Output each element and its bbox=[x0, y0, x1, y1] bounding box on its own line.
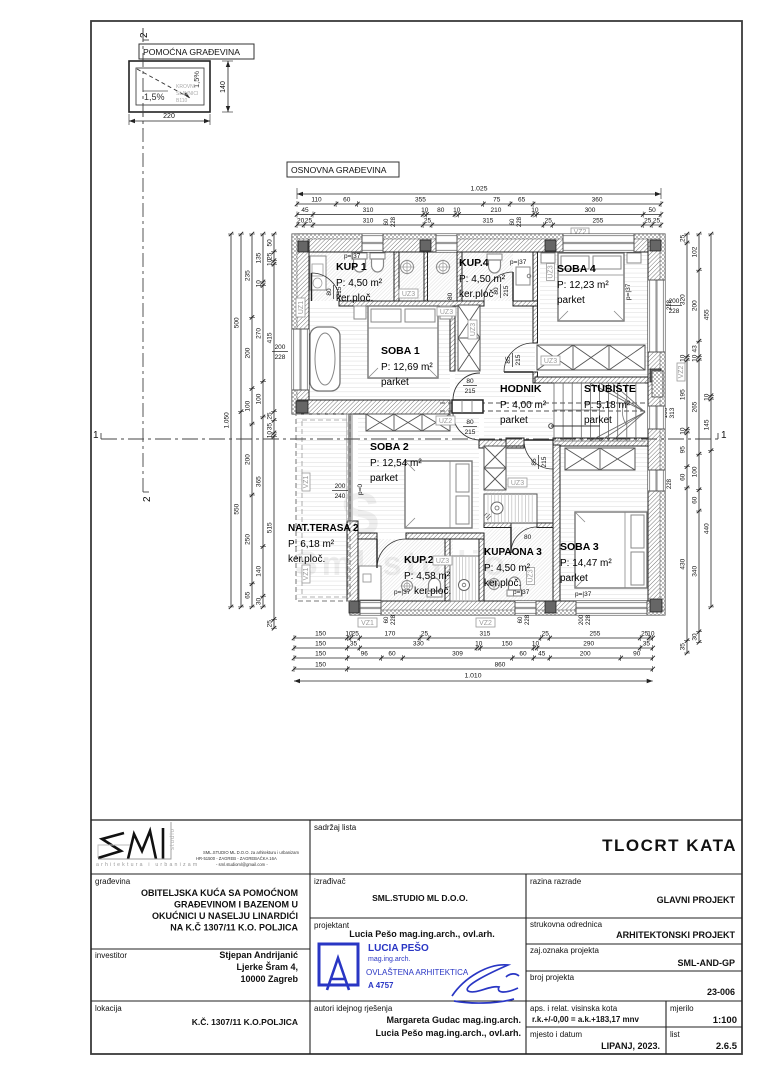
svg-text:UZ3: UZ3 bbox=[436, 558, 449, 565]
svg-text:270: 270 bbox=[256, 328, 263, 339]
svg-text:85: 85 bbox=[505, 356, 512, 364]
svg-text:228: 228 bbox=[669, 308, 680, 315]
svg-text:zaj.oznaka projekta: zaj.oznaka projekta bbox=[530, 946, 599, 955]
svg-text:UZ3: UZ3 bbox=[544, 358, 557, 365]
svg-text:p=|37: p=|37 bbox=[394, 589, 411, 596]
svg-text:investitor: investitor bbox=[95, 951, 127, 960]
svg-text:razina razrade: razina razrade bbox=[530, 877, 582, 886]
svg-text:228: 228 bbox=[586, 614, 592, 625]
svg-text:P: 4,50 m²: P: 4,50 m² bbox=[484, 563, 531, 574]
svg-text:HODNIK: HODNIK bbox=[500, 383, 542, 395]
svg-text:POMOĆNA GRAĐEVINA: POMOĆNA GRAĐEVINA bbox=[143, 47, 240, 57]
svg-text:GLAVNI PROJEKT: GLAVNI PROJEKT bbox=[657, 895, 736, 905]
svg-text:r.k.+/-0,00 = a.k.+183,17 mnv: r.k.+/-0,00 = a.k.+183,17 mnv bbox=[532, 1015, 640, 1024]
svg-text:list: list bbox=[670, 1030, 681, 1039]
svg-text:150: 150 bbox=[315, 662, 326, 669]
svg-text:65: 65 bbox=[245, 591, 252, 599]
svg-text:autori idejnog rješenja: autori idejnog rješenja bbox=[314, 1004, 393, 1013]
svg-text:320: 320 bbox=[680, 294, 687, 305]
svg-text:200: 200 bbox=[275, 344, 286, 351]
svg-text:SOBA 2: SOBA 2 bbox=[370, 441, 409, 453]
svg-text:315: 315 bbox=[482, 218, 493, 225]
svg-text:215: 215 bbox=[503, 285, 510, 296]
svg-text:150: 150 bbox=[315, 651, 326, 658]
svg-text:200: 200 bbox=[335, 483, 346, 490]
svg-text:35: 35 bbox=[267, 423, 274, 431]
svg-text:GRAĐEVINOM I BAZENOM U: GRAĐEVINOM I BAZENOM U bbox=[174, 900, 298, 910]
svg-text:P: 14,47 m²: P: 14,47 m² bbox=[560, 558, 612, 569]
svg-text:200: 200 bbox=[580, 651, 591, 658]
svg-text:K.Č. 1307/11 K.O.POLJICA: K.Č. 1307/11 K.O.POLJICA bbox=[192, 1016, 298, 1027]
svg-text:SML-AND-GP: SML-AND-GP bbox=[678, 958, 736, 968]
svg-text:UZ1: UZ1 bbox=[298, 301, 305, 314]
svg-text:60: 60 bbox=[692, 496, 699, 504]
svg-text:1.050: 1.050 bbox=[224, 412, 231, 429]
svg-text:TLOCRT KATA: TLOCRT KATA bbox=[602, 836, 737, 855]
svg-text:102: 102 bbox=[692, 246, 699, 257]
svg-text:1: 1 bbox=[93, 430, 99, 441]
svg-text:240: 240 bbox=[335, 493, 346, 500]
svg-text:P: 12,23 m²: P: 12,23 m² bbox=[557, 280, 609, 291]
svg-text:KUPAONA 3: KUPAONA 3 bbox=[484, 547, 542, 558]
svg-text:p=|37: p=|37 bbox=[575, 591, 592, 598]
svg-text:ker.ploč.: ker.ploč. bbox=[288, 554, 325, 565]
svg-text:35: 35 bbox=[643, 641, 651, 648]
svg-text:80: 80 bbox=[466, 378, 474, 385]
svg-text:310: 310 bbox=[363, 218, 374, 225]
svg-text:p=|37: p=|37 bbox=[513, 589, 530, 596]
svg-text:građevina: građevina bbox=[95, 877, 131, 886]
svg-text:KUP.2: KUP.2 bbox=[404, 554, 434, 566]
svg-text:65: 65 bbox=[518, 197, 526, 204]
svg-text:SOBA 1: SOBA 1 bbox=[381, 345, 420, 357]
svg-text:80: 80 bbox=[524, 534, 532, 541]
svg-text:KUP.4: KUP.4 bbox=[459, 257, 489, 269]
svg-text:60: 60 bbox=[510, 218, 516, 225]
svg-text:LUCIA PEŠO: LUCIA PEŠO bbox=[368, 941, 429, 954]
svg-text:parket: parket bbox=[557, 295, 585, 306]
svg-text:313: 313 bbox=[669, 407, 676, 418]
svg-text:P: 4,50 m²: P: 4,50 m² bbox=[459, 274, 506, 285]
svg-text:LIPANJ, 2023.: LIPANJ, 2023. bbox=[601, 1041, 660, 1051]
svg-text:Margareta Gudac mag.ing.arch.: Margareta Gudac mag.ing.arch. bbox=[386, 1015, 521, 1025]
svg-text:140: 140 bbox=[256, 565, 263, 576]
svg-text:izrađivač: izrađivač bbox=[314, 877, 346, 886]
svg-text:parket: parket bbox=[584, 415, 612, 426]
svg-text:200: 200 bbox=[245, 454, 252, 465]
svg-text:200: 200 bbox=[692, 300, 699, 311]
svg-text:UZ3: UZ3 bbox=[402, 291, 415, 298]
svg-text:135: 135 bbox=[256, 252, 263, 263]
svg-text:228: 228 bbox=[517, 216, 523, 227]
svg-text:P: 4,00 m²: P: 4,00 m² bbox=[500, 400, 547, 411]
svg-text:215: 215 bbox=[465, 388, 476, 395]
svg-text:200: 200 bbox=[579, 614, 585, 625]
svg-text:60: 60 bbox=[384, 616, 390, 623]
svg-text:OSNOVNA GRAĐEVINA: OSNOVNA GRAĐEVINA bbox=[291, 165, 387, 175]
svg-text:sadržaj lista: sadržaj lista bbox=[314, 823, 357, 832]
svg-text:ker.ploč.: ker.ploč. bbox=[484, 578, 521, 589]
svg-text:p=|37: p=|37 bbox=[344, 253, 361, 260]
svg-text:100: 100 bbox=[256, 393, 263, 404]
svg-text:455: 455 bbox=[704, 309, 711, 320]
svg-text:310: 310 bbox=[363, 207, 374, 214]
svg-text:10000 Zagreb: 10000 Zagreb bbox=[240, 974, 298, 984]
svg-text:strukovna odrednica: strukovna odrednica bbox=[530, 920, 603, 929]
svg-text:VZ2: VZ2 bbox=[479, 620, 492, 627]
svg-text:100: 100 bbox=[692, 466, 699, 477]
svg-text:p=0: p=0 bbox=[357, 484, 364, 495]
svg-text:SML.STUDIO ML D.O.O. za arhi: SML.STUDIO ML D.O.O. za arhitekturu i ur… bbox=[203, 850, 299, 855]
svg-text:ker.ploč.: ker.ploč. bbox=[414, 586, 451, 597]
svg-text:43: 43 bbox=[692, 345, 699, 353]
svg-text:150: 150 bbox=[315, 631, 326, 638]
svg-text:860: 860 bbox=[495, 662, 506, 669]
svg-text:P: 12,69 m²: P: 12,69 m² bbox=[381, 362, 433, 373]
svg-text:VZ1: VZ1 bbox=[303, 475, 310, 488]
svg-text:NAT.TERASA 2: NAT.TERASA 2 bbox=[288, 523, 359, 534]
svg-text:45: 45 bbox=[538, 651, 546, 658]
svg-text:430: 430 bbox=[680, 558, 687, 569]
svg-text:VZ1: VZ1 bbox=[361, 620, 374, 627]
svg-text:HR-51500 - ZAGREB - ZAGREBAČKA: HR-51500 - ZAGREB - ZAGREBAČKA 16A bbox=[196, 856, 277, 861]
svg-text:228: 228 bbox=[667, 478, 673, 489]
svg-text:UZ3: UZ3 bbox=[511, 480, 524, 487]
svg-text:60: 60 bbox=[388, 651, 396, 658]
svg-text:250: 250 bbox=[245, 534, 252, 545]
svg-text:150: 150 bbox=[315, 641, 326, 648]
svg-text:1,5%: 1,5% bbox=[144, 92, 165, 102]
svg-text:23-006: 23-006 bbox=[707, 987, 735, 997]
svg-text:VZ1: VZ1 bbox=[303, 567, 310, 580]
svg-text:aps. i relat. visinska kota: aps. i relat. visinska kota bbox=[530, 1004, 618, 1013]
svg-text:80: 80 bbox=[466, 419, 474, 426]
svg-text:95: 95 bbox=[680, 446, 687, 454]
svg-text:SOBA 4: SOBA 4 bbox=[557, 263, 596, 275]
svg-text:195: 195 bbox=[680, 389, 687, 400]
svg-text:220: 220 bbox=[163, 113, 175, 120]
svg-text:B110: B110 bbox=[176, 98, 188, 104]
svg-text:550: 550 bbox=[234, 503, 241, 514]
svg-text:30: 30 bbox=[256, 598, 263, 606]
svg-text:SML.STUDIO ML D.O.O.: SML.STUDIO ML D.O.O. bbox=[372, 893, 468, 903]
svg-text:parket: parket bbox=[370, 473, 398, 484]
svg-text:NA K.Č 1307/11 K.O. POLJICA: NA K.Č 1307/11 K.O. POLJICA bbox=[170, 922, 298, 933]
svg-text:340: 340 bbox=[692, 565, 699, 576]
svg-text:studio: studio bbox=[170, 828, 176, 850]
svg-text:OBITELJSKA KUĆA SA POMOĆNOM: OBITELJSKA KUĆA SA POMOĆNOM bbox=[141, 887, 298, 898]
svg-text:228: 228 bbox=[525, 614, 531, 625]
svg-text:265: 265 bbox=[692, 401, 699, 412]
svg-text:150: 150 bbox=[502, 641, 513, 648]
svg-text:60: 60 bbox=[680, 473, 687, 481]
svg-text:75: 75 bbox=[493, 197, 501, 204]
svg-text:100: 100 bbox=[245, 400, 252, 411]
svg-text:210: 210 bbox=[490, 207, 501, 214]
svg-text:broj projekta: broj projekta bbox=[530, 973, 575, 982]
svg-text:p=|37: p=|37 bbox=[510, 259, 527, 266]
svg-text:228: 228 bbox=[391, 614, 397, 625]
svg-text:415: 415 bbox=[267, 332, 274, 343]
svg-text:arhitektura i urbanizam: arhitektura i urbanizam bbox=[96, 862, 199, 868]
svg-text:Ljerke Šram 4,: Ljerke Šram 4, bbox=[236, 961, 298, 972]
svg-text:ker.ploč.: ker.ploč. bbox=[336, 293, 373, 304]
svg-text:300: 300 bbox=[585, 207, 596, 214]
svg-text:30: 30 bbox=[692, 633, 699, 641]
svg-text:parket: parket bbox=[560, 573, 588, 584]
svg-text:80: 80 bbox=[326, 288, 333, 296]
svg-text:lokacija: lokacija bbox=[95, 1004, 122, 1013]
svg-text:440: 440 bbox=[704, 523, 711, 534]
svg-text:UZ3: UZ3 bbox=[470, 323, 477, 336]
svg-text:UZ2: UZ2 bbox=[439, 418, 452, 425]
svg-text:ker.ploč: ker.ploč bbox=[459, 289, 493, 300]
svg-text:228: 228 bbox=[275, 354, 286, 361]
svg-text:P: 5,18 m²: P: 5,18 m² bbox=[584, 400, 631, 411]
svg-text:170: 170 bbox=[384, 631, 395, 638]
svg-text:35: 35 bbox=[350, 641, 358, 648]
svg-text:140: 140 bbox=[220, 81, 227, 93]
svg-text:mjesto i datum: mjesto i datum bbox=[530, 1030, 582, 1039]
svg-text:85: 85 bbox=[531, 458, 538, 466]
svg-text:215: 215 bbox=[515, 354, 522, 365]
svg-text:360: 360 bbox=[592, 197, 603, 204]
svg-text:mag.ing.arch.: mag.ing.arch. bbox=[368, 956, 410, 963]
svg-text:OVLAŠTENA ARHITEKTICA: OVLAŠTENA ARHITEKTICA bbox=[366, 968, 469, 977]
svg-text:145: 145 bbox=[704, 419, 711, 430]
svg-text:parket: parket bbox=[381, 377, 409, 388]
svg-text:P: 6,18 m²: P: 6,18 m² bbox=[288, 539, 335, 550]
svg-text:A 4757: A 4757 bbox=[368, 981, 394, 990]
svg-text:P: 4,50 m²: P: 4,50 m² bbox=[336, 278, 383, 289]
svg-text:1.025: 1.025 bbox=[470, 186, 487, 193]
svg-text:ARHITEKTONSKI PROJEKT: ARHITEKTONSKI PROJEKT bbox=[616, 930, 735, 940]
svg-text:330: 330 bbox=[413, 641, 424, 648]
svg-text:500: 500 bbox=[234, 317, 241, 328]
svg-text:110: 110 bbox=[311, 197, 322, 204]
svg-text:P: 12,54 m²: P: 12,54 m² bbox=[370, 458, 422, 469]
svg-text:35: 35 bbox=[680, 643, 687, 651]
svg-text:KROVNI: KROVNI bbox=[176, 84, 195, 90]
svg-text:50: 50 bbox=[267, 239, 274, 247]
svg-text:- sml.studioml@gmail.com -: - sml.studioml@gmail.com - bbox=[216, 862, 268, 867]
svg-text:1:100: 1:100 bbox=[713, 1015, 737, 1026]
svg-text:355: 355 bbox=[415, 197, 426, 204]
svg-text:STUBIŠTE: STUBIŠTE bbox=[584, 382, 636, 395]
svg-text:235: 235 bbox=[245, 270, 252, 281]
svg-text:315: 315 bbox=[479, 631, 490, 638]
svg-text:p=|37: p=|37 bbox=[625, 283, 632, 300]
svg-text:UZ3: UZ3 bbox=[548, 265, 555, 278]
svg-text:365: 365 bbox=[256, 476, 263, 487]
svg-text:Lucia Pešo mag.ing.arch., ovl.: Lucia Pešo mag.ing.arch., ovl.arh. bbox=[375, 1028, 521, 1038]
svg-text:80: 80 bbox=[437, 207, 445, 214]
svg-text:90: 90 bbox=[633, 651, 641, 658]
svg-text:60: 60 bbox=[384, 218, 390, 225]
svg-text:SLAVNICI: SLAVNICI bbox=[176, 91, 198, 97]
svg-text:2.6.5: 2.6.5 bbox=[716, 1041, 738, 1052]
svg-text:228: 228 bbox=[391, 216, 397, 227]
svg-text:VZ2: VZ2 bbox=[678, 365, 685, 378]
svg-text:290: 290 bbox=[583, 641, 594, 648]
svg-text:Stjepan Andrijanić: Stjepan Andrijanić bbox=[219, 950, 298, 960]
svg-text:50: 50 bbox=[648, 207, 656, 214]
svg-text:Lucia Pešo mag.ing.arch., ovl.: Lucia Pešo mag.ing.arch., ovl.arh. bbox=[349, 929, 495, 939]
svg-text:SOBA 3: SOBA 3 bbox=[560, 541, 599, 553]
svg-text:215: 215 bbox=[541, 456, 548, 467]
svg-text:parket: parket bbox=[500, 415, 528, 426]
svg-text:60: 60 bbox=[519, 651, 527, 658]
svg-text:515: 515 bbox=[267, 522, 274, 533]
svg-text:OKUĆNICI U NASELJU LINARDIĆI: OKUĆNICI U NASELJU LINARDIĆI bbox=[152, 910, 298, 921]
svg-text:255: 255 bbox=[592, 218, 603, 225]
svg-text:1: 1 bbox=[721, 430, 727, 441]
svg-text:96: 96 bbox=[361, 651, 369, 658]
svg-text:2: 2 bbox=[139, 32, 150, 38]
svg-text:45: 45 bbox=[301, 207, 309, 214]
svg-text:P: 4,58 m²: P: 4,58 m² bbox=[404, 571, 451, 582]
svg-text:projektant: projektant bbox=[314, 921, 350, 930]
svg-text:200: 200 bbox=[245, 347, 252, 358]
svg-text:1.010: 1.010 bbox=[464, 673, 481, 680]
svg-text:UZ3: UZ3 bbox=[440, 309, 453, 316]
svg-text:KUP 1: KUP 1 bbox=[336, 261, 367, 273]
svg-text:309: 309 bbox=[452, 651, 463, 658]
svg-text:80: 80 bbox=[493, 287, 500, 295]
svg-text:255: 255 bbox=[589, 631, 600, 638]
svg-text:200: 200 bbox=[669, 298, 680, 305]
svg-text:215: 215 bbox=[465, 429, 476, 436]
svg-text:2: 2 bbox=[142, 496, 153, 502]
svg-text:mjerilo: mjerilo bbox=[670, 1004, 694, 1013]
svg-text:60: 60 bbox=[343, 197, 351, 204]
svg-text:80: 80 bbox=[447, 292, 454, 300]
svg-text:60: 60 bbox=[518, 616, 524, 623]
